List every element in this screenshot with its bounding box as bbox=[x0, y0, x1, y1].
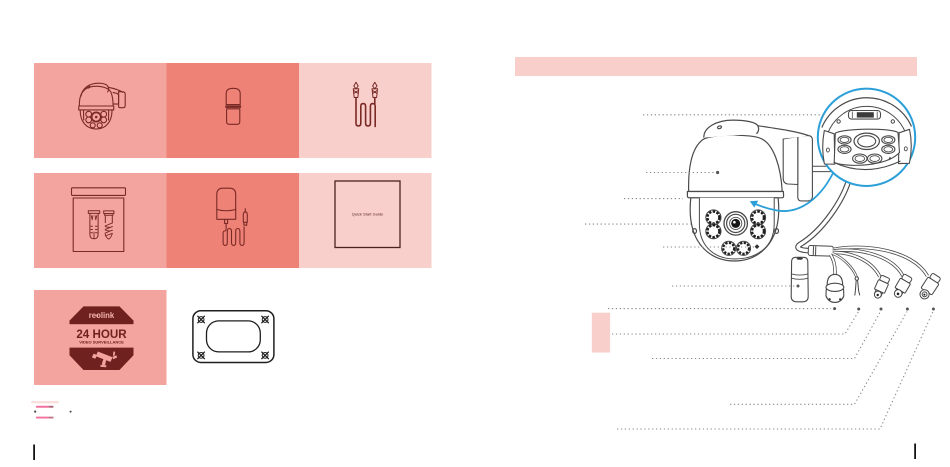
svg-text:VIDEO SURVEILLANCE: VIDEO SURVEILLANCE bbox=[79, 339, 124, 344]
svg-text:reolink: reolink bbox=[89, 311, 115, 320]
svg-text:Quick Start Guide: Quick Start Guide bbox=[352, 212, 384, 217]
